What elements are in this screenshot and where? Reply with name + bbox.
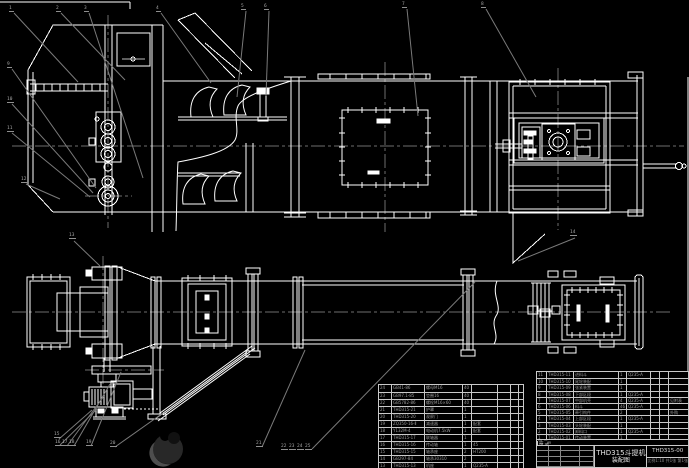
table-cell	[650, 404, 659, 409]
table-cell: THD315-17	[391, 435, 424, 441]
table-cell: 中部机壳	[573, 398, 618, 403]
table-cell	[659, 416, 668, 421]
table-cell	[497, 442, 510, 448]
table-cell: HT200	[471, 449, 497, 455]
table-cell: 4	[537, 416, 546, 421]
table-cell: 外购	[668, 410, 688, 415]
table-cell: 1	[618, 379, 626, 384]
table-row: 10THD315-10尾轮装配1	[537, 378, 688, 384]
table-cell: THD315-09	[546, 385, 573, 390]
table-cell	[510, 393, 518, 399]
drawing-title-line1: THD315斗提机	[595, 449, 646, 457]
table-cell: THD315-21	[391, 407, 424, 413]
table-cell: 轴承30310	[424, 456, 462, 462]
table-cell: THD315-13	[391, 463, 424, 468]
table-cell: 卸料口	[573, 429, 618, 434]
table-cell: 5	[537, 410, 546, 415]
table-cell: 头轮装配	[573, 423, 618, 428]
bom-table-left: 24GB41-86螺母M164023GB97.1-85垫圈164022GB578…	[378, 384, 524, 468]
table-cell: 14	[379, 456, 391, 462]
table-cell: 4	[618, 398, 626, 403]
balloon-callout: 22	[281, 444, 288, 450]
table-cell	[471, 435, 497, 441]
table-cell: 19	[379, 421, 391, 427]
table-cell: GB41-86	[391, 385, 424, 392]
table-cell: GB297-84	[391, 456, 424, 462]
table-cell	[510, 456, 518, 462]
table-row: 17THD315-17联轴器1	[379, 434, 523, 441]
table-cell: 40	[462, 393, 471, 399]
table-row: 2THD315-02卸料口1Q235-A	[537, 428, 688, 434]
balloon-callout: 4	[156, 6, 161, 12]
table-cell: 1	[462, 421, 471, 427]
table-cell	[659, 423, 668, 428]
table-cell: 垫圈16	[424, 393, 462, 399]
balloon-callout: 14	[570, 230, 577, 236]
bom-table-right: 11THD315-11进料斗1Q235-A10THD315-10尾轮装配19TH…	[536, 371, 689, 446]
top-view	[27, 13, 686, 263]
table-row: 13THD315-13机座1Q235-A	[379, 462, 523, 468]
balloon-callout: 20	[110, 441, 117, 447]
table-cell: 2	[618, 410, 626, 415]
table-cell: 1	[462, 442, 471, 448]
table-cell: 1	[618, 372, 626, 378]
table-cell	[510, 407, 518, 413]
table-row: 7THD315-07中部机壳4Q235-A见附表	[537, 397, 688, 403]
table-cell	[668, 392, 688, 397]
table-row: 11THD315-11进料斗1Q235-A	[537, 372, 688, 378]
table-cell	[518, 435, 523, 441]
table-cell: 3	[537, 423, 546, 428]
table-cell	[510, 414, 518, 420]
table-cell	[510, 421, 518, 427]
table-cell: THD315-08	[546, 392, 573, 397]
table-cell: 45	[471, 442, 497, 448]
table-cell: 15	[379, 449, 391, 455]
title-footer-note: 比例1:10 共1张 第1张	[647, 458, 688, 463]
table-cell	[626, 379, 650, 384]
table-cell: 1	[618, 423, 626, 428]
table-cell	[668, 416, 688, 421]
table-row: 4THD315-04上部区段1Q235-A	[537, 415, 688, 421]
table-cell: 进料斗	[573, 372, 618, 378]
table-cell: THD315-06	[546, 404, 573, 409]
table-cell: 16	[379, 442, 391, 448]
table-cell	[497, 428, 510, 434]
table-cell	[497, 435, 510, 441]
balloon-callout: 2	[56, 6, 61, 12]
table-cell	[471, 400, 497, 406]
table-cell	[626, 385, 650, 390]
table-cell: GB97.1-85	[391, 393, 424, 399]
table-cell: 电动机7.5kW	[424, 428, 462, 434]
table-cell: 轴承座	[424, 449, 462, 455]
balloon-callout: 8	[481, 2, 486, 8]
table-cell	[510, 449, 518, 455]
table-cell: 1	[618, 429, 626, 434]
table-cell: 1	[618, 392, 626, 397]
balloon-callout: 18	[69, 440, 76, 446]
balloon-callout: 9	[7, 62, 12, 68]
table-cell: 10	[537, 379, 546, 384]
leader-lines	[12, 9, 575, 449]
balloon-callout: 6	[264, 4, 269, 10]
table-cell	[510, 428, 518, 434]
drawing-number-cell: THD315-00 比例1:10 共1张 第1张	[647, 446, 688, 467]
table-row: 9THD315-09张紧装置1	[537, 384, 688, 390]
table-cell	[650, 385, 659, 390]
table-cell: THD315-15	[391, 449, 424, 455]
table-cell: 联轴器	[424, 435, 462, 441]
table-cell: 配套	[471, 421, 497, 427]
table-cell	[471, 456, 497, 462]
table-cell	[510, 435, 518, 441]
table-cell: Q235-A	[471, 463, 497, 468]
table-cell	[659, 385, 668, 390]
table-cell	[668, 429, 688, 434]
table-cell: 护罩	[424, 407, 462, 413]
table-cell: Q235-A	[626, 392, 650, 397]
table-cell	[650, 423, 659, 428]
table-cell: 配套	[471, 428, 497, 434]
table-cell	[518, 393, 523, 399]
balloon-callout: 13	[69, 233, 76, 239]
table-cell	[659, 372, 668, 378]
table-cell: Q235-A	[626, 398, 650, 403]
balloon-callout: 5	[241, 4, 246, 10]
table-cell	[659, 392, 668, 397]
table-cell	[650, 379, 659, 384]
table-row: 23GB97.1-85垫圈1640	[379, 392, 523, 399]
table-cell: 螺栓M16×60	[424, 400, 462, 406]
table-cell: 2	[462, 456, 471, 462]
table-cell: 11	[537, 372, 546, 378]
balloon-callout: 15	[54, 432, 61, 438]
table-cell: Y132M-4	[391, 428, 424, 434]
table-row: 21THD315-21护罩1	[379, 406, 523, 413]
table-cell: 2	[537, 429, 546, 434]
table-cell: 牵引构件	[573, 410, 618, 415]
balloon-callout: 25	[305, 444, 312, 450]
table-cell: 2	[462, 449, 471, 455]
balloon-callout: 10	[7, 97, 14, 103]
table-cell: GB5782-86	[391, 400, 424, 406]
table-row: 24GB41-86螺母M1640	[379, 385, 523, 392]
table-cell	[497, 393, 510, 399]
table-cell: 下部区段	[573, 392, 618, 397]
table-cell	[650, 429, 659, 434]
table-row: 6THD315-06料斗46Q235-A	[537, 403, 688, 409]
table-cell	[510, 442, 518, 448]
table-cell	[659, 404, 668, 409]
table-cell: Q235-A	[626, 404, 650, 409]
table-row: 14GB297-84轴承303102	[379, 455, 523, 462]
table-cell	[650, 416, 659, 421]
table-cell	[510, 463, 518, 468]
table-cell: 1	[618, 385, 626, 390]
table-cell	[518, 463, 523, 468]
table-cell: 张紧装置	[573, 385, 618, 390]
table-cell: 20	[379, 414, 391, 420]
table-cell: THD315-11	[546, 372, 573, 378]
table-cell	[668, 379, 688, 384]
table-cell	[518, 414, 523, 420]
table-cell	[668, 423, 688, 428]
table-cell: 40	[462, 400, 471, 406]
table-cell	[471, 407, 497, 413]
watermark-logo	[149, 431, 183, 467]
table-row: 5THD315-05牵引构件2外购	[537, 409, 688, 415]
table-cell: THD315-03	[546, 423, 573, 428]
table-cell	[497, 463, 510, 468]
table-cell	[471, 393, 497, 399]
table-row: 20THD315-20观察门1	[379, 413, 523, 420]
table-cell: THD315-07	[546, 398, 573, 403]
table-cell	[626, 423, 650, 428]
balloon-callout: 12	[21, 177, 28, 183]
table-cell: 21	[379, 407, 391, 413]
table-cell: 17	[379, 435, 391, 441]
table-cell: 观察门	[424, 414, 462, 420]
table-cell: 6	[537, 404, 546, 409]
table-cell: 8	[537, 392, 546, 397]
table-cell: ZQ350-16-Ⅱ	[391, 421, 424, 427]
table-cell	[650, 410, 659, 415]
balloon-callout: 7	[402, 2, 407, 8]
table-cell	[497, 385, 510, 392]
table-cell	[518, 407, 523, 413]
table-cell: 40	[462, 385, 471, 392]
table-cell: 18	[379, 428, 391, 434]
table-cell	[518, 400, 523, 406]
table-cell	[668, 372, 688, 378]
table-cell: 1	[462, 463, 471, 468]
cad-canvas: 1234567891011121314151617181920212223242…	[0, 0, 689, 468]
table-cell: 1	[618, 416, 626, 421]
balloon-callout: 23	[289, 444, 296, 450]
table-cell	[518, 421, 523, 427]
table-cell	[497, 421, 510, 427]
table-cell	[497, 456, 510, 462]
table-cell: THD315-16	[391, 442, 424, 448]
table-cell: THD315-02	[546, 429, 573, 434]
balloon-callout: 1	[9, 6, 14, 12]
table-cell: 见附表	[668, 398, 688, 403]
table-row: 15THD315-15轴承座2HT200	[379, 448, 523, 455]
balloon-callout: 21	[256, 441, 263, 447]
table-cell: Q235-A	[626, 429, 650, 434]
table-cell: THD315-05	[546, 410, 573, 415]
table-cell: 螺母M16	[424, 385, 462, 392]
table-cell: Q235-A	[626, 372, 650, 378]
table-cell: 上部区段	[573, 416, 618, 421]
table-cell	[659, 379, 668, 384]
table-cell: 1	[462, 414, 471, 420]
table-cell	[510, 400, 518, 406]
revision-grid	[537, 446, 595, 467]
drawing-number: THD315-00	[647, 446, 688, 458]
table-row: 18Y132M-4电动机7.5kW1配套	[379, 427, 523, 434]
balloon-callout: 19	[86, 440, 93, 446]
table-cell	[497, 414, 510, 420]
table-cell	[497, 449, 510, 455]
table-cell	[650, 392, 659, 397]
table-cell: 7	[537, 398, 546, 403]
table-cell: 22	[379, 400, 391, 406]
table-cell: 9	[537, 385, 546, 390]
table-cell: THD315-10	[546, 379, 573, 384]
balloon-callout: 3	[84, 6, 89, 12]
drawing-title: THD315斗提机 装配图	[595, 446, 647, 467]
table-cell	[497, 400, 510, 406]
table-cell	[518, 442, 523, 448]
table-cell: 24	[379, 385, 391, 392]
table-cell: 46	[618, 404, 626, 409]
table-cell	[471, 385, 497, 392]
table-cell	[518, 449, 523, 455]
table-cell: 1	[462, 435, 471, 441]
table-cell	[650, 372, 659, 378]
table-cell	[668, 385, 688, 390]
table-cell: 13	[379, 463, 391, 468]
table-cell: 机座	[424, 463, 462, 468]
table-cell	[626, 410, 650, 415]
table-cell	[659, 398, 668, 403]
table-cell	[497, 407, 510, 413]
table-cell	[518, 385, 523, 392]
table-cell	[510, 385, 518, 392]
table-cell: 尾轮装配	[573, 379, 618, 384]
table-cell	[659, 410, 668, 415]
table-cell	[650, 398, 659, 403]
table-row: 19ZQ350-16-Ⅱ减速器1配套	[379, 420, 523, 427]
table-cell: THD315-20	[391, 414, 424, 420]
table-row: 22GB5782-86螺栓M16×6040	[379, 399, 523, 406]
table-cell: Q235-A	[626, 416, 650, 421]
table-cell: 1	[462, 407, 471, 413]
table-cell	[659, 429, 668, 434]
balloon-callout: 11	[7, 126, 14, 132]
balloon-callout: 24	[297, 444, 304, 450]
table-cell	[518, 456, 523, 462]
table-row: 3THD315-03头轮装配1	[537, 422, 688, 428]
table-cell	[518, 428, 523, 434]
table-cell	[471, 414, 497, 420]
table-cell: 1	[462, 428, 471, 434]
table-cell: 传动轴	[424, 442, 462, 448]
table-cell: THD315-04	[546, 416, 573, 421]
table-cell: 料斗	[573, 404, 618, 409]
title-block: THD315斗提机 装配图 THD315-00 比例1:10 共1张 第1张	[536, 445, 689, 468]
table-cell: 23	[379, 393, 391, 399]
table-cell: 减速器	[424, 421, 462, 427]
drawing-title-line2: 装配图	[595, 457, 646, 464]
table-row: 8THD315-08下部区段1Q235-A	[537, 391, 688, 397]
table-row: 16THD315-16传动轴145	[379, 441, 523, 448]
table-cell	[668, 404, 688, 409]
